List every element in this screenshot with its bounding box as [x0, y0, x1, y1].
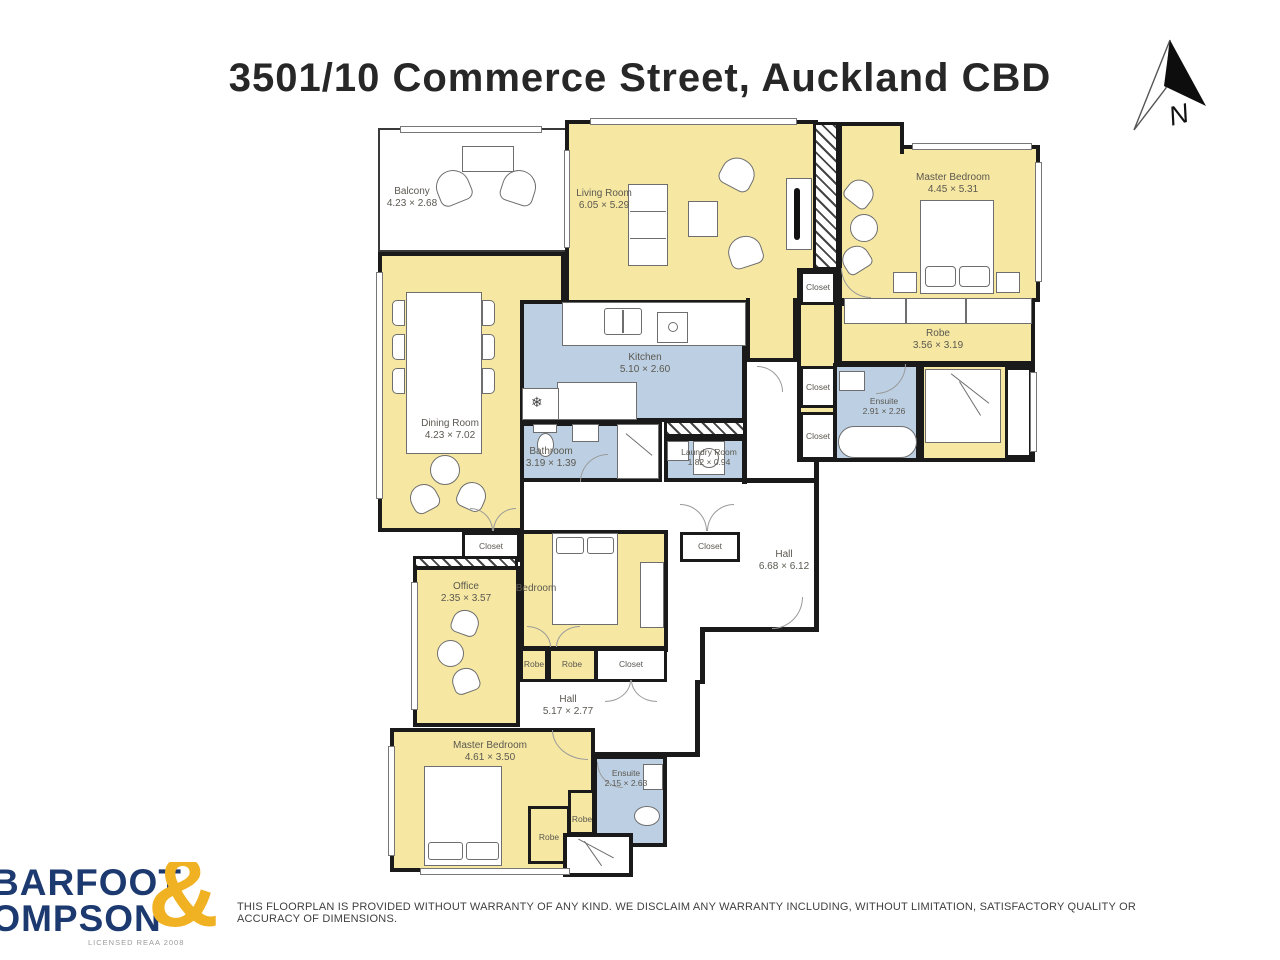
disclaimer-text: THIS FLOORPLAN IS PROVIDED WITHOUT WARRA…: [237, 901, 1197, 925]
shower: [925, 369, 1001, 443]
room-master-top-notch: [838, 122, 904, 154]
balcony-slider-window: [564, 150, 570, 248]
shower: [617, 424, 659, 479]
nightstand: [893, 272, 917, 293]
robe-label: Robe: [539, 832, 559, 842]
wall-segment: [746, 478, 814, 483]
room-label-master-bottom: Master Bedroom4.61 × 3.50: [453, 740, 527, 764]
kitchen-island: [562, 302, 746, 346]
closet-label: Closet: [698, 541, 722, 551]
kitchen-sink-divider: [622, 310, 624, 333]
hall-connector: [664, 630, 700, 684]
window: [388, 746, 395, 856]
closet-label: Closet: [806, 282, 830, 292]
robe-label: Robe: [524, 659, 544, 669]
round-table: [430, 455, 460, 485]
dining-chair: [392, 368, 405, 394]
north-letter: N: [1166, 98, 1193, 132]
dining-chair: [392, 334, 405, 360]
tv: [794, 188, 800, 240]
room-label-robe-top: Robe3.56 × 3.19: [913, 328, 963, 352]
structural-column: [813, 122, 839, 270]
kitchen-counter: [557, 382, 637, 420]
window: [1030, 372, 1037, 452]
room-label-ensuite-top: Ensuite2.91 × 2.26: [863, 396, 906, 417]
closet-label: Closet: [619, 659, 643, 669]
sofa-cushion-line: [630, 211, 666, 212]
robe-right-strip: [1005, 367, 1032, 458]
basin: [572, 424, 599, 442]
room-label-bedroom: Bedroom: [516, 583, 557, 595]
office-table: [437, 640, 464, 667]
sofa-cushion-line: [630, 238, 666, 239]
room-label-hall-lower: Hall5.17 × 2.77: [543, 694, 593, 718]
pillow: [959, 266, 990, 287]
hall-main-area: [520, 482, 814, 532]
north-arrow: N: [1126, 34, 1216, 138]
toilet-bowl: [634, 806, 660, 826]
window: [420, 868, 570, 875]
room-label-hall-main: Hall6.68 × 6.12: [759, 549, 809, 573]
floorplan-page: 3501/10 Commerce Street, Auckland CBD N: [0, 0, 1280, 960]
shower-room-bottom: [563, 833, 633, 877]
wall-segment: [700, 627, 819, 632]
toilet-tank: [533, 424, 557, 433]
closet-label: Closet: [806, 431, 830, 441]
logo-ampersand: &: [148, 862, 219, 948]
pillow: [587, 537, 614, 554]
room-label-dining: Dining Room4.23 × 7.02: [421, 418, 479, 442]
room-label-kitchen: Kitchen5.10 × 2.60: [620, 352, 670, 376]
room-label-living: Living Room6.05 × 5.29: [576, 188, 632, 212]
dining-chair: [482, 368, 495, 394]
window: [376, 272, 383, 499]
wall-segment: [700, 627, 705, 684]
bathtub: [838, 426, 917, 458]
sofa: [628, 184, 668, 266]
window: [912, 143, 1032, 150]
wardrobe-row: [844, 298, 1032, 324]
dining-chair: [482, 300, 495, 326]
room-label-master-top: Master Bedroom4.45 × 5.31: [916, 172, 990, 196]
balcony-table: [462, 146, 514, 172]
pillow: [466, 842, 499, 860]
side-table: [850, 214, 878, 242]
pillow: [428, 842, 463, 860]
logo-line2: THOMPSON: [0, 898, 162, 940]
north-arrow-graphic: N: [1126, 34, 1216, 138]
dishwasher-dial: [668, 322, 678, 332]
window: [1035, 162, 1042, 282]
robe-label: Robe: [572, 814, 592, 824]
dining-chair: [482, 334, 495, 360]
bedroom-wardrobe: [640, 562, 664, 628]
room-robe-small: [568, 790, 595, 835]
robe-label: Robe: [562, 659, 582, 669]
room-living-strip: [746, 298, 797, 362]
page-title: 3501/10 Commerce Street, Auckland CBD: [0, 56, 1280, 101]
window: [411, 582, 418, 710]
room-label-bathroom: Bathroom3.19 × 1.39: [526, 446, 576, 470]
closet-label: Closet: [806, 382, 830, 392]
wall-segment: [695, 680, 700, 757]
window: [590, 118, 797, 125]
room-label-laundry: Laundry Room1.82 × 0.94: [681, 447, 737, 468]
vanity-sink: [839, 371, 865, 391]
room-label-office: Office2.35 × 3.57: [441, 581, 491, 605]
closet-label: Closet: [479, 541, 503, 551]
dining-chair: [392, 300, 405, 326]
agency-logo: BARFOOT THOMPSON & LICENSED REAA 2008: [0, 862, 240, 948]
wall-segment: [814, 458, 819, 632]
room-label-balcony: Balcony4.23 × 2.68: [387, 186, 437, 210]
wardrobe-divider: [905, 299, 907, 323]
pillow: [925, 266, 956, 287]
window: [400, 126, 542, 133]
laundry-hatch-wall: [664, 420, 746, 437]
logo-licence-text: LICENSED REAA 2008: [88, 938, 184, 947]
fridge-snowflake-icon: ❄: [531, 394, 543, 411]
nightstand: [996, 272, 1020, 293]
coffee-table: [688, 201, 718, 237]
room-label-ensuite-bottom: Ensuite2.15 × 2.63: [605, 768, 648, 789]
wardrobe-divider: [965, 299, 967, 323]
pillow: [556, 537, 584, 554]
